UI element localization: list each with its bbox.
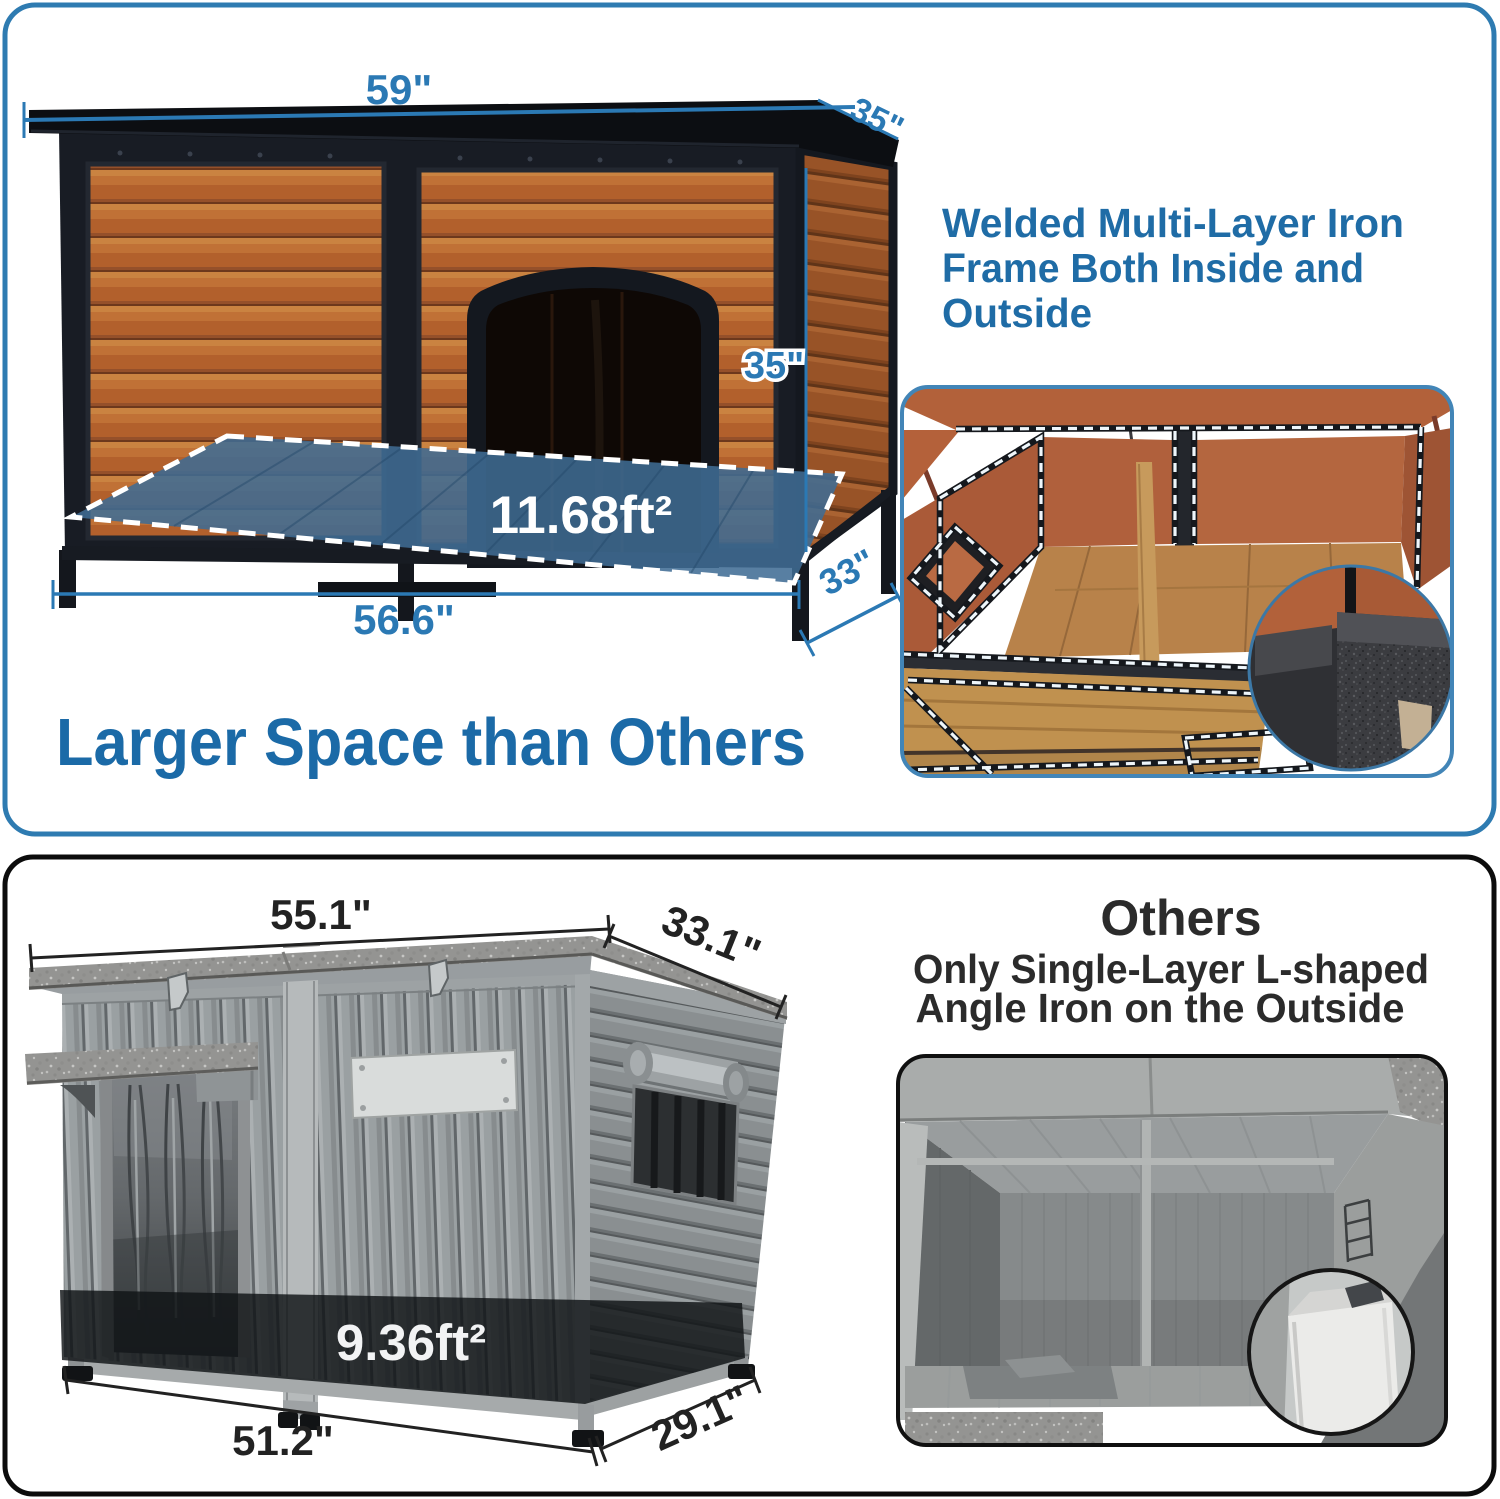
svg-text:Larger Space than Others: Larger Space than Others <box>56 705 806 780</box>
svg-text:Outside: Outside <box>942 290 1092 336</box>
svg-text:Frame Both Inside and: Frame Both Inside and <box>942 245 1364 291</box>
svg-text:Others: Others <box>1100 890 1261 946</box>
svg-text:Angle Iron on the Outside: Angle Iron on the Outside <box>916 985 1405 1031</box>
svg-text:11.68ft²: 11.68ft² <box>490 486 673 545</box>
svg-text:Welded Multi-Layer Iron: Welded Multi-Layer Iron <box>942 200 1404 246</box>
svg-text:51.2": 51.2" <box>232 1417 334 1464</box>
svg-text:59": 59" <box>366 66 433 113</box>
svg-text:9.36ft²: 9.36ft² <box>336 1314 486 1371</box>
svg-text:56.6": 56.6" <box>353 596 455 643</box>
svg-text:35": 35" <box>744 345 804 387</box>
svg-text:55.1": 55.1" <box>270 891 372 938</box>
